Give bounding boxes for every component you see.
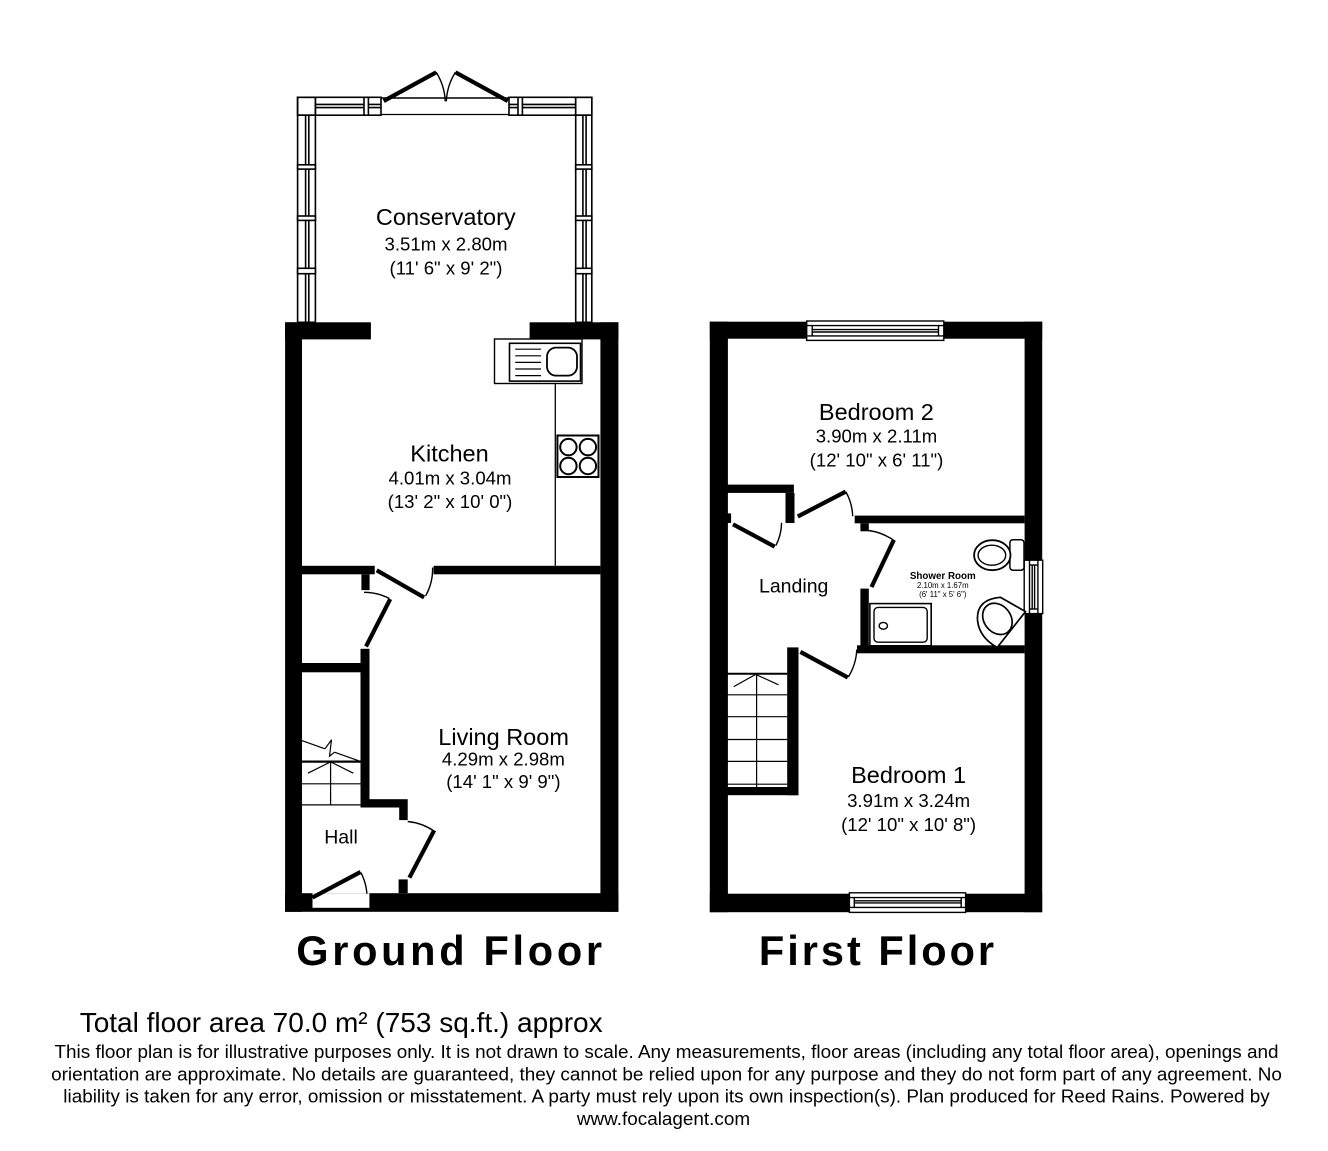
svg-text:Kitchen: Kitchen [410, 440, 488, 466]
svg-text:Hall: Hall [324, 827, 358, 849]
svg-text:(11' 6" x 9' 2"): (11' 6" x 9' 2") [390, 258, 503, 279]
svg-text:(14' 1" x 9' 9"): (14' 1" x 9' 9") [446, 771, 560, 792]
svg-text:Ground Floor: Ground Floor [296, 927, 606, 974]
svg-text:Bedroom 1: Bedroom 1 [851, 762, 966, 788]
svg-text:orientation are approximate. N: orientation are approximate. No details … [51, 1064, 1282, 1085]
svg-text:Conservatory: Conservatory [376, 204, 516, 230]
svg-text:(13' 2" x 10' 0"): (13' 2" x 10' 0") [388, 491, 513, 512]
svg-text:www.focalagent.com: www.focalagent.com [576, 1109, 750, 1130]
svg-text:3.91m x 3.24m: 3.91m x 3.24m [847, 790, 970, 811]
svg-text:Landing: Landing [759, 575, 828, 597]
svg-text:Living Room: Living Room [438, 724, 569, 750]
svg-text:(6' 11" x 5' 6"): (6' 11" x 5' 6") [919, 590, 967, 599]
svg-text:2.10m x 1.67m: 2.10m x 1.67m [917, 581, 969, 590]
svg-text:4.29m x 2.98m: 4.29m x 2.98m [442, 748, 565, 769]
svg-text:(12' 10" x 6' 11"): (12' 10" x 6' 11") [810, 450, 944, 471]
svg-text:3.51m x 2.80m: 3.51m x 2.80m [385, 233, 508, 254]
svg-text:liability is taken for any err: liability is taken for any error, omissi… [63, 1087, 1270, 1108]
svg-text:Total floor area 70.0 m² (753: Total floor area 70.0 m² (753 sq.ft.) ap… [80, 1007, 603, 1038]
svg-text:(12' 10" x 10' 8"): (12' 10" x 10' 8") [841, 814, 976, 835]
svg-text:4.01m x 3.04m: 4.01m x 3.04m [389, 468, 512, 489]
svg-text:Bedroom 2: Bedroom 2 [819, 399, 934, 425]
svg-text:3.90m x 2.11m: 3.90m x 2.11m [816, 425, 938, 446]
svg-text:First Floor: First Floor [759, 927, 997, 974]
svg-text:This floor plan is for illustr: This floor plan is for illustrative purp… [55, 1042, 1279, 1063]
